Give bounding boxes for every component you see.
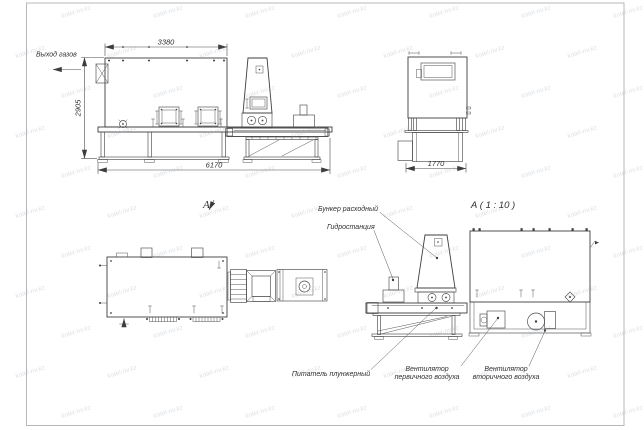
svg-text:kotel-nv.kz: kotel-nv.kz xyxy=(245,244,277,260)
svg-text:kotel-nv.kz: kotel-nv.kz xyxy=(429,84,461,100)
svg-text:kotel-nv.kz: kotel-nv.kz xyxy=(245,164,277,180)
plan-bottom-grates xyxy=(146,317,224,322)
boiler-top-bolts xyxy=(108,60,225,62)
svg-text:kotel-nv.kz: kotel-nv.kz xyxy=(567,44,599,60)
svg-text:kotel-nv.kz: kotel-nv.kz xyxy=(613,324,644,340)
svg-text:kotel-nv.kz: kotel-nv.kz xyxy=(337,84,369,100)
svg-text:kotel-nv.kz: kotel-nv.kz xyxy=(153,84,185,100)
ash-hatch-left xyxy=(156,107,183,126)
svg-text:kotel-nv.kz: kotel-nv.kz xyxy=(521,404,553,420)
svg-text:kotel-nv.kz: kotel-nv.kz xyxy=(0,324,1,340)
svg-text:kotel-nv.kz: kotel-nv.kz xyxy=(15,284,47,300)
svg-text:kotel-nv.kz: kotel-nv.kz xyxy=(567,204,599,220)
svg-text:kotel-nv.kz: kotel-nv.kz xyxy=(613,404,644,420)
svg-text:kotel-nv.kz: kotel-nv.kz xyxy=(475,124,507,140)
svg-text:kotel-nv.kz: kotel-nv.kz xyxy=(429,244,461,260)
svg-text:kotel-nv.kz: kotel-nv.kz xyxy=(61,324,93,340)
plan-ground-anchor-symbol xyxy=(120,319,129,326)
svg-text:kotel-nv.kz: kotel-nv.kz xyxy=(567,124,599,140)
svg-text:kotel-nv.kz: kotel-nv.kz xyxy=(521,244,553,260)
svg-text:kotel-nv.kz: kotel-nv.kz xyxy=(153,244,185,260)
svg-text:kotel-nv.kz: kotel-nv.kz xyxy=(613,4,644,20)
svg-text:kotel-nv.kz: kotel-nv.kz xyxy=(61,244,93,260)
end-hatch xyxy=(417,63,456,80)
detail-plunger-feeder xyxy=(366,303,467,314)
svg-text:kotel-nv.kz: kotel-nv.kz xyxy=(107,204,139,220)
svg-text:kotel-nv.kz: kotel-nv.kz xyxy=(199,364,231,380)
svg-text:kotel-nv.kz: kotel-nv.kz xyxy=(15,364,47,380)
svg-text:kotel-nv.kz: kotel-nv.kz xyxy=(245,324,277,340)
svg-text:kotel-nv.kz: kotel-nv.kz xyxy=(153,4,185,20)
detail-body-flag xyxy=(590,241,599,248)
svg-text:kotel-nv.kz: kotel-nv.kz xyxy=(521,84,553,100)
svg-text:kotel-nv.kz: kotel-nv.kz xyxy=(291,44,323,60)
ash-hatch-right xyxy=(195,107,222,126)
feeder-drive-box xyxy=(242,113,272,128)
plan-inner-anchor-ticks xyxy=(149,261,224,313)
svg-text:kotel-nv.kz: kotel-nv.kz xyxy=(245,404,277,420)
svg-text:kotel-nv.kz: kotel-nv.kz xyxy=(107,364,139,380)
technical-drawing-canvas: 3380 2905 6170 Выход газов xyxy=(0,0,644,430)
svg-text:kotel-nv.kz: kotel-nv.kz xyxy=(383,124,415,140)
end-side-box xyxy=(398,141,413,161)
svg-text:kotel-nv.kz: kotel-nv.kz xyxy=(429,404,461,420)
hydrostation-label: Гидростанция xyxy=(327,223,375,231)
plan-hopper xyxy=(247,271,276,302)
svg-text:kotel-nv.kz: kotel-nv.kz xyxy=(613,244,644,260)
svg-text:kotel-nv.kz: kotel-nv.kz xyxy=(0,244,1,260)
svg-text:kotel-nv.kz: kotel-nv.kz xyxy=(61,4,93,20)
svg-text:kotel-nv.kz: kotel-nv.kz xyxy=(61,404,93,420)
svg-text:kotel-nv.kz: kotel-nv.kz xyxy=(107,124,139,140)
svg-text:kotel-nv.kz: kotel-nv.kz xyxy=(475,44,507,60)
conveyor-truss-stand xyxy=(243,137,321,162)
svg-text:kotel-nv.kz: kotel-nv.kz xyxy=(15,204,47,220)
svg-text:kotel-nv.kz: kotel-nv.kz xyxy=(153,404,185,420)
end-top-tick-marks xyxy=(409,52,461,55)
svg-text:kotel-nv.kz: kotel-nv.kz xyxy=(567,364,599,380)
svg-text:kotel-nv.kz: kotel-nv.kz xyxy=(475,284,507,300)
secondary-duct-pedestal xyxy=(294,105,315,128)
svg-text:kotel-nv.kz: kotel-nv.kz xyxy=(199,284,231,300)
fan-primary-label-line2: первичного воздуха xyxy=(395,373,460,381)
svg-text:kotel-nv.kz: kotel-nv.kz xyxy=(199,44,231,60)
svg-text:kotel-nv.kz: kotel-nv.kz xyxy=(337,4,369,20)
end-legs xyxy=(405,118,468,133)
svg-text:kotel-nv.kz: kotel-nv.kz xyxy=(245,4,277,20)
svg-text:kotel-nv.kz: kotel-nv.kz xyxy=(613,164,644,180)
svg-text:kotel-nv.kz: kotel-nv.kz xyxy=(383,204,415,220)
svg-text:kotel-nv.kz: kotel-nv.kz xyxy=(337,164,369,180)
svg-text:kotel-nv.kz: kotel-nv.kz xyxy=(61,84,93,100)
end-feeder-trough xyxy=(413,133,463,162)
drawing-sheet: 3380 2905 6170 Выход газов xyxy=(0,0,644,430)
svg-text:kotel-nv.kz: kotel-nv.kz xyxy=(245,84,277,100)
callout-hopper: Бункер расходный xyxy=(318,205,438,259)
svg-text:kotel-nv.kz: kotel-nv.kz xyxy=(0,4,1,20)
svg-text:kotel-nv.kz: kotel-nv.kz xyxy=(0,84,1,100)
svg-text:kotel-nv.kz: kotel-nv.kz xyxy=(107,284,139,300)
plan-left-ticks xyxy=(99,265,107,305)
svg-text:kotel-nv.kz: kotel-nv.kz xyxy=(521,164,553,180)
svg-text:kotel-nv.kz: kotel-nv.kz xyxy=(0,164,1,180)
svg-text:kotel-nv.kz: kotel-nv.kz xyxy=(153,164,185,180)
dim-3380-text: 3380 xyxy=(158,38,176,47)
dim-2905-text: 2905 xyxy=(74,99,83,118)
svg-text:kotel-nv.kz: kotel-nv.kz xyxy=(153,324,185,340)
svg-text:kotel-nv.kz: kotel-nv.kz xyxy=(429,324,461,340)
plan-flanged-coupling xyxy=(228,270,247,303)
view-detail-a: А ( 1 : 10 ) Бункер расходный Гидростанц… xyxy=(292,200,599,381)
hopper-label: Бункер расходный xyxy=(318,205,378,213)
svg-text:kotel-nv.kz: kotel-nv.kz xyxy=(15,124,47,140)
detail-feeder-drive xyxy=(418,292,454,303)
gas-outlet-callout: Выход газов xyxy=(36,51,81,70)
view-end-elevation: 1770 xyxy=(398,52,471,173)
view-side-elevation: 3380 2905 6170 Выход газов xyxy=(36,38,332,175)
svg-text:kotel-nv.kz: kotel-nv.kz xyxy=(383,44,415,60)
svg-text:kotel-nv.kz: kotel-nv.kz xyxy=(521,4,553,20)
dim-1770-text: 1770 xyxy=(428,159,446,168)
dimension-6170: 6170 xyxy=(98,138,330,174)
svg-text:kotel-nv.kz: kotel-nv.kz xyxy=(337,244,369,260)
svg-text:kotel-nv.kz: kotel-nv.kz xyxy=(337,324,369,340)
detail-feed-hopper xyxy=(415,235,456,292)
dim-6170-text: 6170 xyxy=(206,161,224,170)
svg-text:kotel-nv.kz: kotel-nv.kz xyxy=(521,324,553,340)
svg-text:kotel-nv.kz: kotel-nv.kz xyxy=(291,204,323,220)
svg-text:kotel-nv.kz: kotel-nv.kz xyxy=(613,84,644,100)
gas-outlet-stub xyxy=(96,64,108,83)
svg-text:kotel-nv.kz: kotel-nv.kz xyxy=(0,404,1,420)
svg-text:kotel-nv.kz: kotel-nv.kz xyxy=(61,164,93,180)
svg-text:kotel-nv.kz: kotel-nv.kz xyxy=(429,4,461,20)
dimension-2905: 2905 xyxy=(74,58,105,159)
svg-text:kotel-nv.kz: kotel-nv.kz xyxy=(567,284,599,300)
svg-text:kotel-nv.kz: kotel-nv.kz xyxy=(337,404,369,420)
